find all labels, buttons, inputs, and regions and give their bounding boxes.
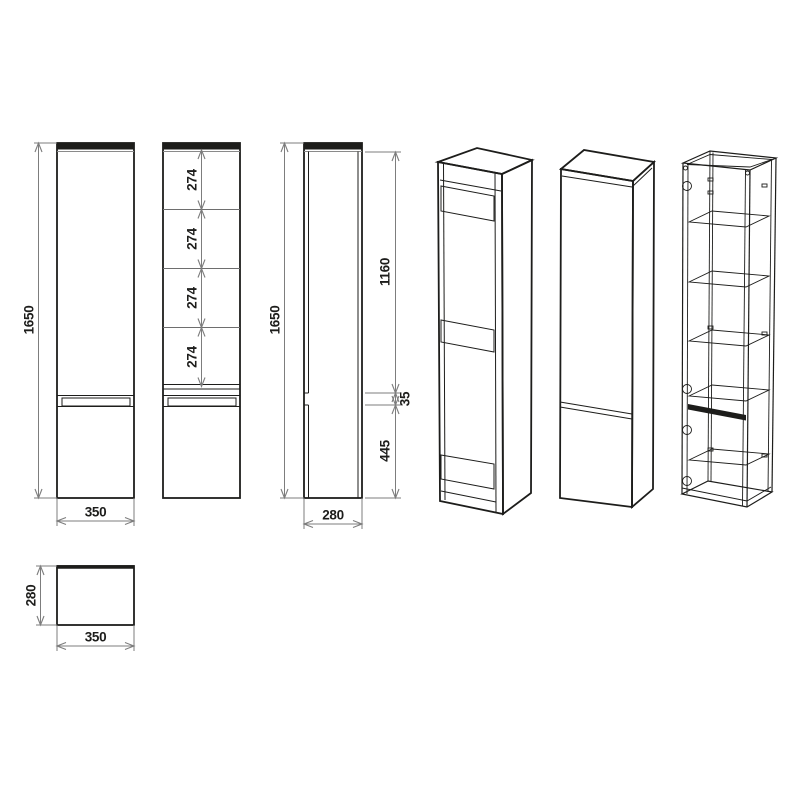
wireframe-shelf-1 [689, 211, 769, 227]
wireframe-post-back-right-inner [768, 160, 772, 493]
front-handle-groove [62, 398, 130, 406]
dim-label-upper-door: 1160 [378, 258, 393, 286]
wireframe-post-back-right [772, 158, 776, 492]
wireframe-post-back-left-inner [711, 153, 713, 482]
dim-label-top-width: 350 [85, 630, 107, 645]
wireframe-post-front-right [747, 170, 750, 507]
wireframe-shelf-4 [689, 385, 769, 401]
front-view-shelves: 274 274 274 274 [163, 143, 240, 498]
top-view-outline [57, 566, 134, 625]
iso-open-left-inner [444, 164, 446, 500]
iso-open-top-panel-line [440, 180, 501, 191]
iso-closed-front-face [560, 169, 633, 507]
side-top-panel-edge [304, 144, 362, 150]
shelf-view-handle-groove [168, 398, 236, 406]
iso-closed-right-face [632, 162, 654, 507]
wireframe-post-front-left [682, 163, 683, 494]
iso-closed-groove-top [560, 402, 632, 414]
shelf-pin-2 [708, 191, 713, 194]
iso-open-right-face [502, 160, 532, 514]
dim-label-spacing-3: 274 [185, 286, 200, 308]
dim-label-spacing-1: 274 [185, 168, 200, 190]
dim-label-spacing-4: 274 [185, 345, 200, 367]
wireframe-post-back-left [708, 151, 710, 481]
dim-label-top-depth: 280 [24, 585, 39, 607]
wireframe-shelf-2 [689, 271, 769, 287]
dim-label-side-depth: 280 [322, 508, 344, 523]
drawing-sheet: 1650 350 274 274 274 274 [0, 0, 800, 800]
wireframe-shelf-3 [689, 330, 769, 346]
technical-drawing-canvas: 1650 350 274 274 274 274 [0, 0, 800, 800]
iso-view-wireframe [682, 151, 776, 507]
shelf-pin-1 [708, 178, 713, 181]
iso-closed-groove-bottom [560, 407, 632, 419]
top-view: 280 350 [24, 566, 134, 651]
iso-open-bottom-inner [441, 491, 496, 502]
hinge-mount-1 [683, 182, 692, 191]
iso-closed-top-thickness-front [562, 176, 632, 187]
wireframe-post-front-left-inner [687, 165, 688, 494]
iso-open-hatched-band-middle [441, 320, 494, 352]
iso-view-closed [560, 150, 654, 507]
dim-label-lower-door: 445 [378, 439, 393, 461]
iso-view-open [438, 148, 532, 514]
corner-fitting-2 [746, 171, 750, 175]
corner-fitting-1 [684, 166, 688, 170]
dim-label-front-width: 350 [85, 505, 107, 520]
dim-label-front-height: 1650 [22, 306, 37, 335]
wireframe-post-front-right-inner [743, 169, 746, 506]
front-view: 1650 350 [22, 143, 134, 526]
side-view: 1650 1160 35 445 280 [268, 143, 413, 529]
iso-open-right-inner [495, 173, 496, 512]
iso-open-hatched-band-top [441, 186, 494, 221]
dim-label-spacing-2: 274 [185, 227, 200, 249]
wireframe-shelf-lower [689, 449, 769, 465]
shelf-view-top-panel-edge [163, 144, 240, 150]
wireframe-fixed-shelf-band [688, 404, 746, 421]
side-outline [304, 143, 362, 498]
dim-label-gap: 35 [398, 391, 413, 406]
iso-closed-top-thickness-right [632, 168, 652, 187]
front-top-panel-edge [57, 144, 134, 150]
iso-open-front-face [438, 162, 503, 514]
front-cabinet-outline [57, 143, 134, 498]
dim-label-side-height: 1650 [268, 306, 283, 335]
iso-open-hatched-band-bottom [441, 455, 494, 489]
shelf-pin-3 [762, 184, 767, 187]
